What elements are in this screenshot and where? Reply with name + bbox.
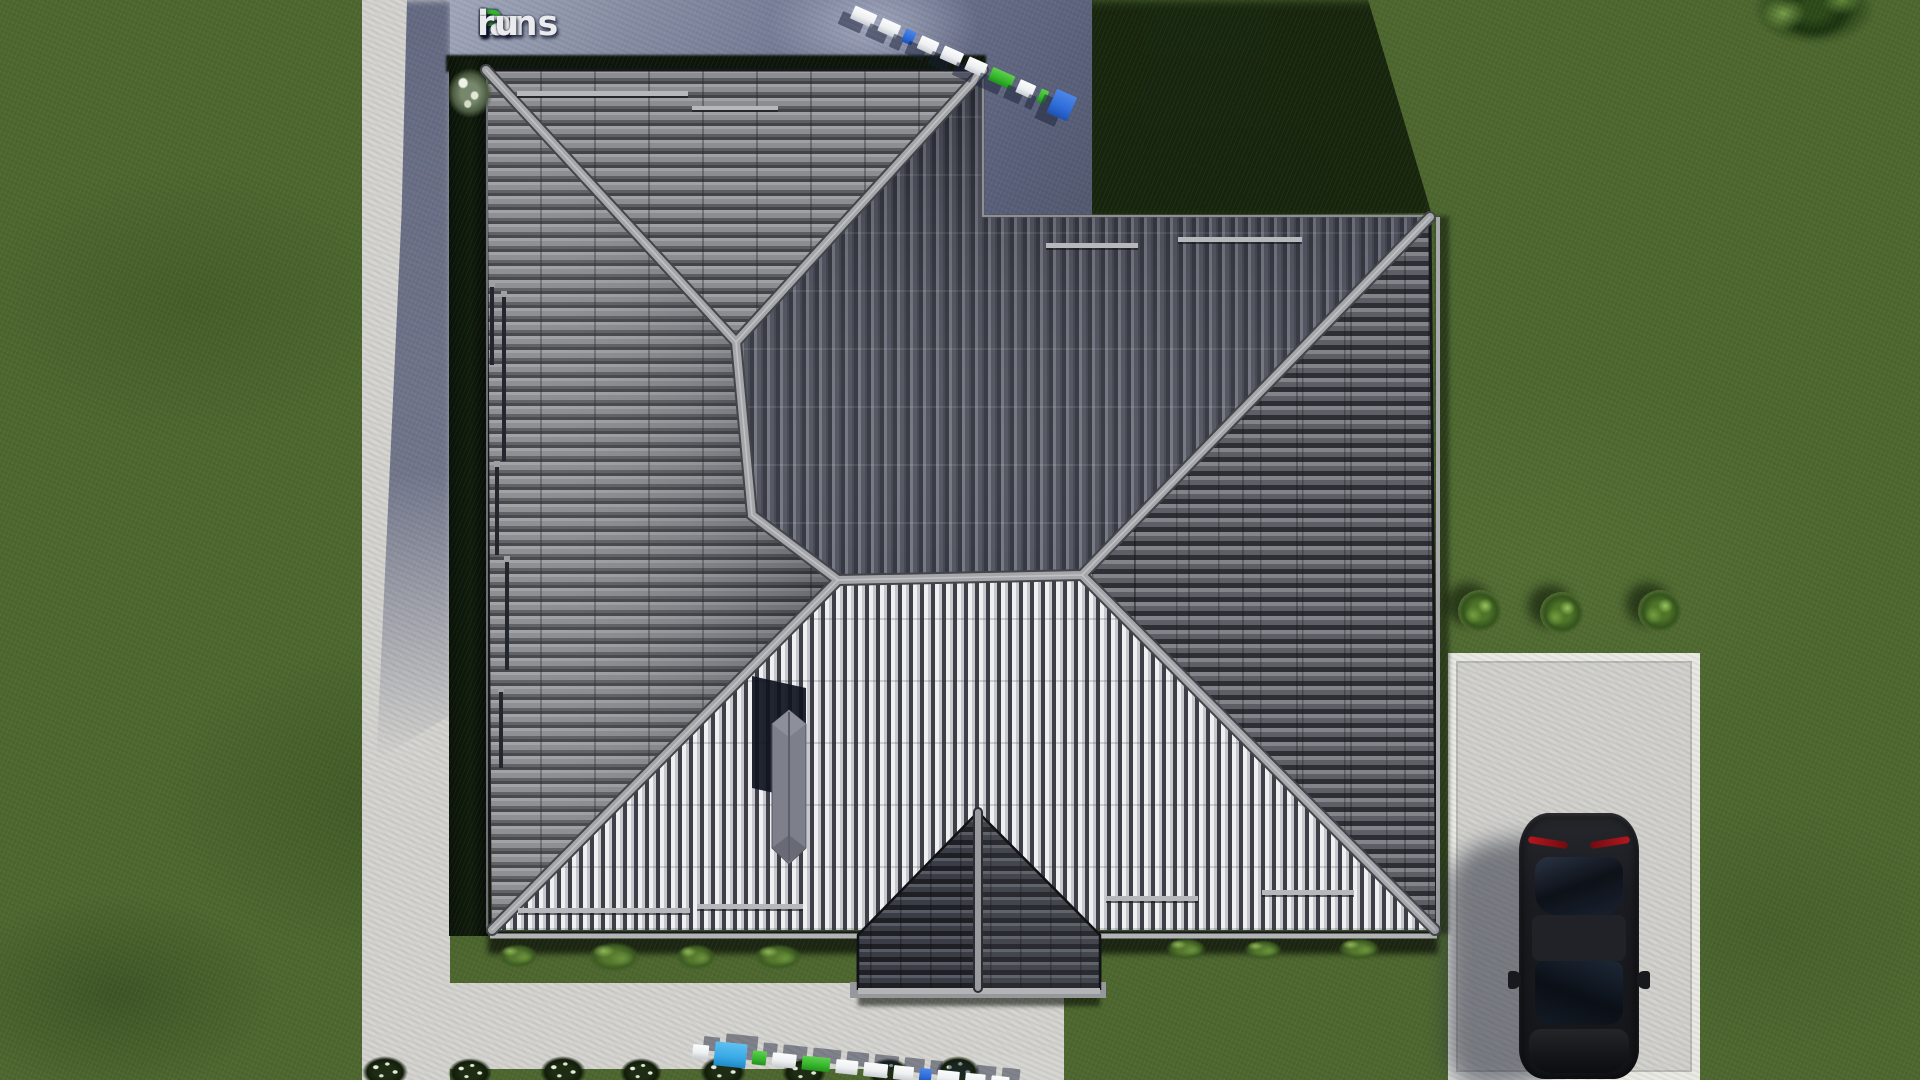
- scale-bar-segment-white: [877, 18, 901, 39]
- scale-bar-segment-white: [771, 1052, 796, 1068]
- scale-bar-segment-white: [939, 45, 963, 66]
- scale-bar-segment-white: [893, 1065, 914, 1080]
- watermark-part: ru: [477, 4, 519, 44]
- bush: [1244, 940, 1282, 960]
- car-mirror-right: [1637, 971, 1650, 989]
- scale-bar-segment-white: [863, 1062, 888, 1078]
- bush: [676, 944, 716, 970]
- bush: [754, 944, 802, 970]
- bush: [1540, 592, 1584, 634]
- car-roof: [1532, 915, 1626, 961]
- car-rear-window: [1535, 857, 1623, 915]
- bush: [1458, 590, 1502, 632]
- scale-bar-segment-white: [937, 1070, 960, 1080]
- bush: [1338, 938, 1380, 960]
- flower-bush: [362, 1056, 408, 1080]
- car: [1519, 813, 1639, 1079]
- flower-bush: [540, 1056, 586, 1080]
- scale-bar-segment-lightblue_large: [713, 1041, 747, 1068]
- bush: [588, 942, 640, 972]
- scale-bar-segment-blue: [919, 1068, 932, 1080]
- scale-bar-segment-white: [835, 1059, 858, 1075]
- scale-bar-segment-green: [988, 67, 1015, 89]
- flower-bush: [620, 1058, 662, 1080]
- bush: [1166, 938, 1206, 960]
- flower-bush: [448, 1058, 492, 1080]
- scale-bar-segment-white: [964, 1073, 985, 1080]
- scale-bar-segment-white: [692, 1044, 709, 1060]
- scale-bar-segment-white: [917, 35, 940, 55]
- flower-bush: [447, 68, 493, 118]
- bush: [1638, 590, 1682, 632]
- scale-bar-segment-white: [850, 5, 877, 27]
- scale-bar-segment-blue: [901, 28, 917, 45]
- car-windshield: [1535, 961, 1623, 1025]
- bush: [498, 944, 538, 968]
- scale-bar-segment-green: [752, 1050, 767, 1065]
- aerial-house-render: FixPlans.ru: [0, 0, 1920, 1080]
- scale-bar-segment-green: [1036, 88, 1049, 104]
- scale-bar-segment-white: [1015, 79, 1037, 99]
- scale-bar-segment-green: [801, 1055, 830, 1072]
- car-hood: [1529, 1029, 1629, 1073]
- scale-bar-segment-white: [964, 56, 988, 77]
- scale-bar-segment-white: [990, 1075, 1009, 1080]
